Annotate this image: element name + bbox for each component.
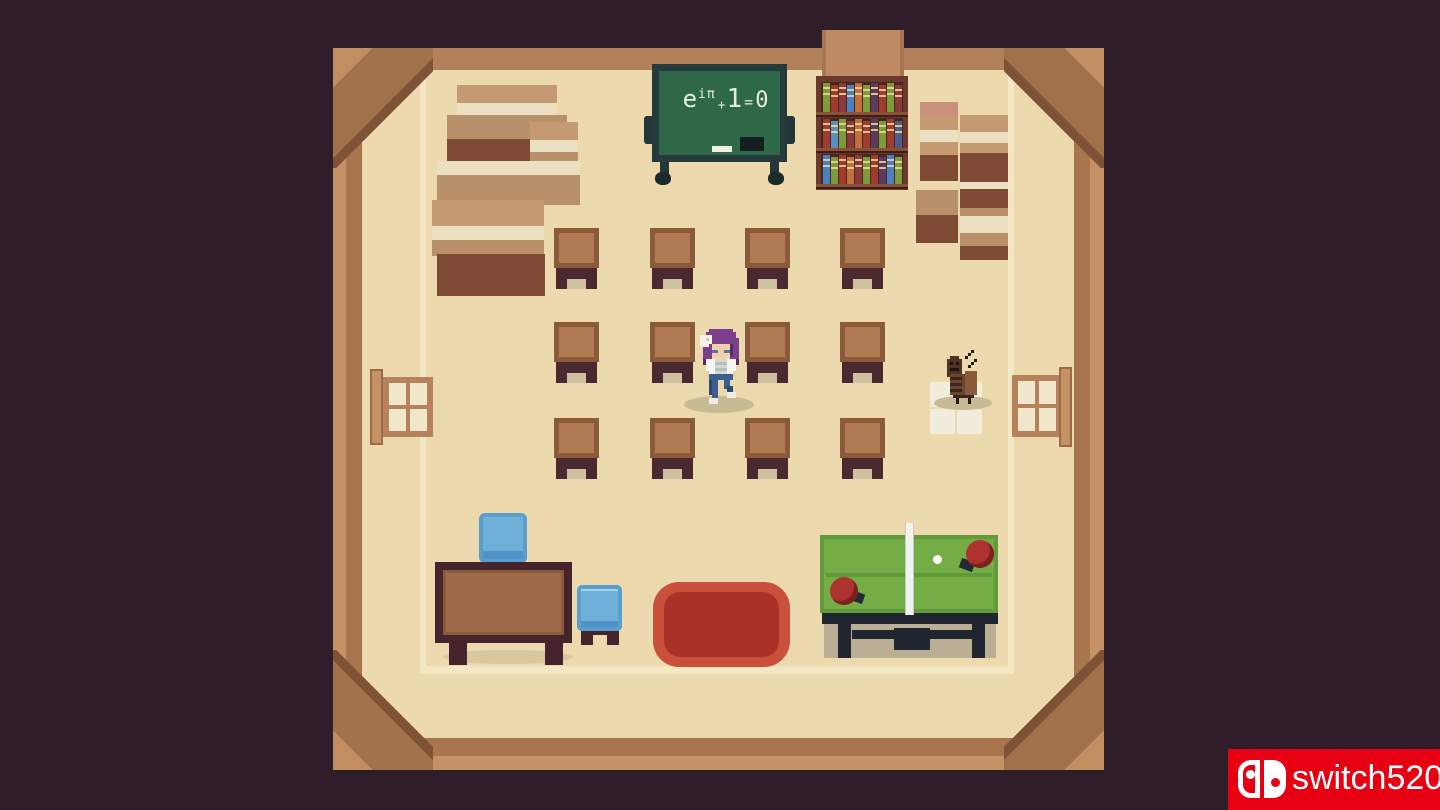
book-stack-slab (916, 190, 958, 215)
chalkboard-wheel (655, 172, 671, 185)
book-spine (855, 83, 862, 112)
book-spine (823, 155, 830, 184)
book-stack-slab (437, 161, 580, 175)
board-eraser (740, 137, 764, 151)
teacher-desk (435, 562, 572, 643)
chair-leg (607, 631, 619, 645)
student-desk (650, 418, 695, 479)
ping-pong-net (905, 523, 914, 615)
book-spine (887, 119, 894, 148)
window-right-jamb (1059, 367, 1072, 447)
book-spine (855, 119, 862, 148)
window-pane (389, 383, 406, 405)
book-stack-slab (920, 102, 958, 116)
student-desk (840, 228, 885, 289)
red-rug-center (664, 592, 779, 657)
book-spine (863, 121, 870, 148)
student-desk (650, 228, 695, 289)
chair-blue-top (479, 513, 527, 563)
book-stack-slab (960, 208, 1008, 216)
book-spine (895, 85, 902, 112)
formula-equals: = (744, 93, 754, 111)
book-stack-slab (960, 115, 1008, 132)
book-spine (887, 155, 894, 184)
book-stack-slab (920, 116, 958, 130)
window-left-jamb (370, 369, 383, 445)
table-leg (838, 624, 851, 658)
student-desk (650, 322, 695, 383)
book-spine (871, 155, 878, 184)
book-spine (895, 121, 902, 148)
joycon-button-dot (1246, 770, 1255, 779)
book-spine (863, 85, 870, 112)
formula-zero: 0 (755, 88, 769, 113)
chair-blue-right (577, 585, 622, 631)
student-desk (745, 228, 790, 289)
chalk-piece (712, 146, 732, 152)
floor-tile (957, 409, 982, 434)
student-desk (554, 322, 599, 383)
book-stack-slab (457, 103, 557, 115)
teacher-desk-leg (545, 643, 563, 665)
book-spine (855, 155, 862, 184)
book-stack-slab (432, 226, 544, 240)
formula-one: 1 (727, 84, 744, 114)
shelf-board (816, 184, 908, 189)
corner-brace-top-left (333, 48, 433, 168)
book-spine (871, 83, 878, 112)
joycon-button-dot (1271, 778, 1280, 787)
window-pane (1039, 408, 1056, 431)
book-stack-slab (530, 140, 578, 152)
chalkboard-formula: e iπ + 1 = 0 (668, 84, 784, 114)
student-desk (554, 418, 599, 479)
book-spine (879, 157, 886, 184)
floor-tile (930, 409, 955, 434)
bookshelf-row (821, 154, 903, 184)
chair-leg (581, 631, 593, 645)
ping-pong-ball (933, 555, 942, 564)
bookshelf (816, 76, 908, 190)
book-spine (839, 83, 846, 112)
corner-brace-bottom-left (333, 650, 433, 770)
formula-plus: + (718, 98, 727, 113)
window-pane (410, 383, 427, 405)
paddle-right (966, 540, 994, 568)
window-left (383, 377, 433, 437)
red-rug (653, 582, 790, 667)
book-stack-slab (960, 216, 1008, 233)
game-viewport[interactable]: e iπ + 1 = 0 (0, 0, 1440, 810)
book-spine (847, 157, 854, 184)
wall-bottom-band-light (333, 756, 1104, 770)
book-stack-slab (530, 122, 578, 140)
switch-logo-icon (1238, 760, 1260, 798)
student-desk (840, 322, 885, 383)
corner-brace-bottom-right (1004, 650, 1104, 770)
bookshelf-top-panel (822, 30, 904, 80)
book-spine (871, 119, 878, 148)
book-spine (887, 83, 894, 112)
book-spine (847, 85, 854, 112)
student-desk (745, 418, 790, 479)
formula-base: e (683, 85, 698, 113)
watermark-text: switch520 (1292, 749, 1440, 810)
book-stack-slab (916, 215, 958, 243)
shelf-board (816, 112, 908, 117)
book-stack-slab (920, 130, 958, 142)
bookshelf-row (821, 118, 903, 148)
student-desk (840, 418, 885, 479)
book-stack-slab (960, 233, 1008, 246)
window-pane (410, 409, 427, 431)
table-center-support (894, 628, 930, 650)
book-spine (831, 157, 838, 184)
book-stack-slab (960, 143, 1008, 153)
book-spine (879, 121, 886, 148)
student-desk (745, 322, 790, 383)
window-right (1012, 375, 1062, 437)
book-stack-slab (960, 153, 1008, 182)
book-stack-slab (960, 182, 1008, 189)
floor-edge-bottom (420, 666, 1014, 674)
window-pane (1018, 381, 1035, 404)
chalkboard-wheel (768, 172, 784, 185)
student-desk (554, 228, 599, 289)
book-spine (831, 121, 838, 148)
book-stack-slab (960, 132, 1008, 143)
watermark-badge: switch520 (1228, 749, 1440, 810)
book-spine (863, 157, 870, 184)
wall-bottom-band-dark (333, 738, 1104, 756)
teacher-desk-leg (449, 643, 467, 665)
table-leg (972, 624, 985, 658)
book-spine (879, 85, 886, 112)
book-stack-slab (960, 189, 1008, 208)
book-spine (895, 157, 902, 184)
book-stack-slab (960, 246, 1008, 260)
player-character (694, 326, 748, 410)
corner-brace-top-right (1004, 48, 1104, 168)
book-spine (839, 155, 846, 184)
book-spine (823, 119, 830, 148)
switch-logo-icon (1264, 760, 1286, 798)
formula-exponent: iπ (698, 87, 716, 102)
book-spine (831, 85, 838, 112)
window-pane (1039, 381, 1056, 404)
book-spine (839, 119, 846, 148)
book-stack-slab (920, 142, 958, 155)
book-spine (847, 121, 854, 148)
shelf-board (816, 148, 908, 153)
book-stack-slab (920, 155, 958, 181)
window-pane (389, 409, 406, 431)
cockroach-npc (938, 350, 992, 407)
window-pane (1018, 408, 1035, 431)
bookshelf-row (821, 82, 903, 112)
paddle-left (830, 577, 858, 605)
book-stack-slab (437, 254, 545, 296)
book-spine (823, 83, 830, 112)
